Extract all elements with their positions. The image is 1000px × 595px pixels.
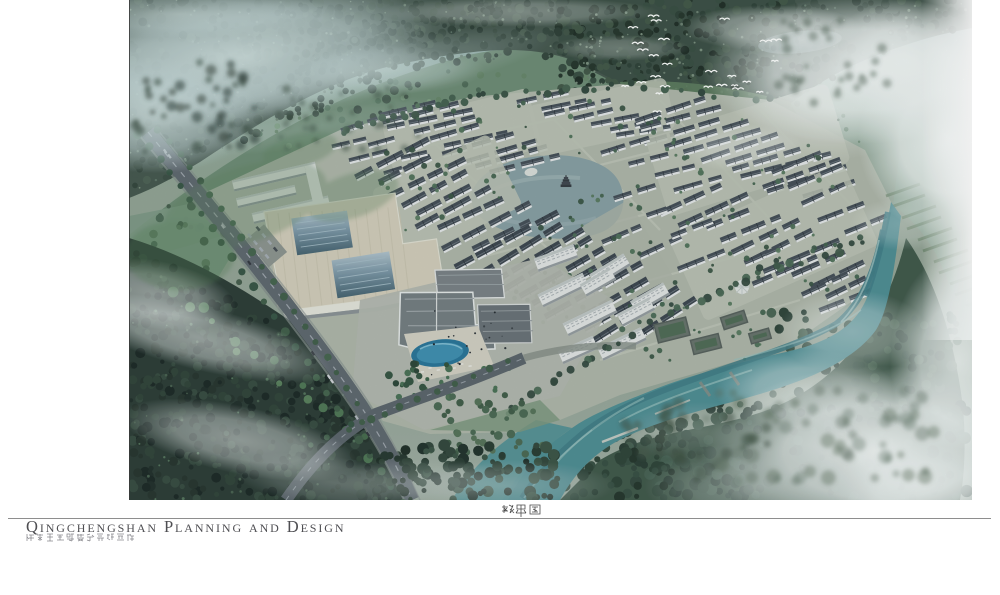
svg-text:Qingchengshan Planning and Des: Qingchengshan Planning and Design: [26, 517, 345, 536]
